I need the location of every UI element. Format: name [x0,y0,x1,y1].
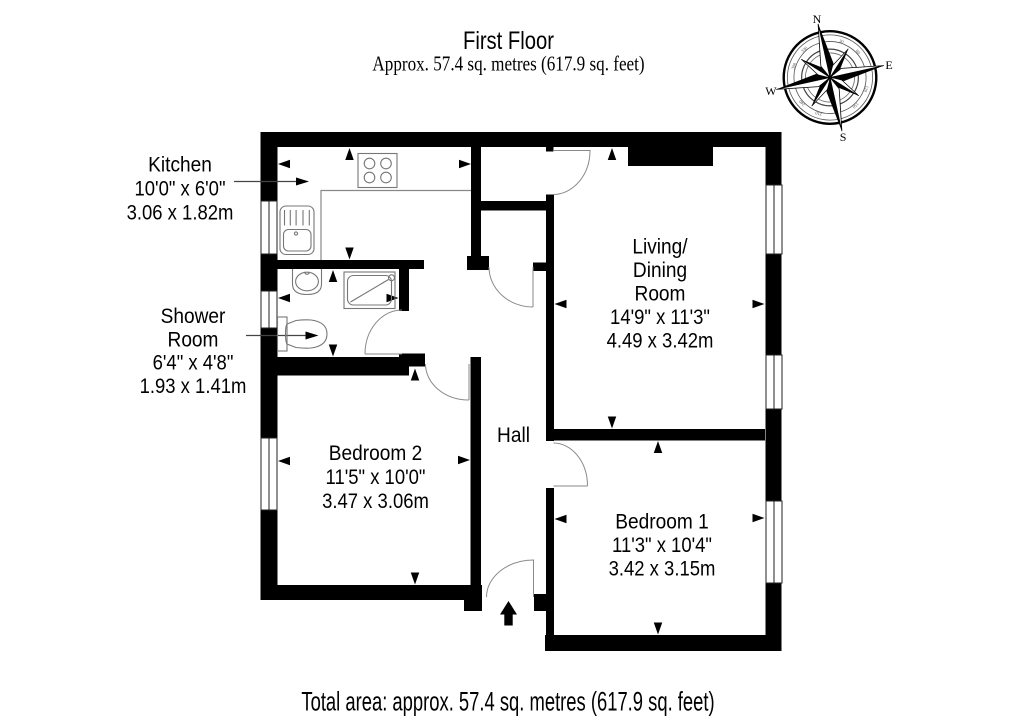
svg-text:10'0" x 6'0": 10'0" x 6'0" [134,177,225,200]
svg-text:Bedroom 1: Bedroom 1 [615,511,708,534]
svg-text:N: N [813,12,822,26]
svg-text:3.06 x 1.82m: 3.06 x 1.82m [127,201,234,224]
svg-text:Dining: Dining [633,259,687,282]
svg-text:Room: Room [635,283,686,306]
svg-text:Hall: Hall [497,424,530,447]
svg-text:Kitchen: Kitchen [148,154,212,177]
svg-text:Approx. 57.4 sq. metres (617.9: Approx. 57.4 sq. metres (617.9 sq. feet) [372,53,644,76]
svg-text:1.93 x 1.41m: 1.93 x 1.41m [140,375,247,398]
svg-text:S: S [840,130,847,144]
svg-text:W: W [765,84,777,98]
svg-text:3.42 x 3.15m: 3.42 x 3.15m [609,557,716,580]
svg-text:3.47 x 3.06m: 3.47 x 3.06m [322,490,429,513]
svg-text:Total area: approx. 57.4 sq. m: Total area: approx. 57.4 sq. metres (617… [301,686,714,716]
svg-text:Living/: Living/ [632,236,688,259]
svg-text:4.49 x 3.42m: 4.49 x 3.42m [607,329,714,352]
svg-text:11'3" x 10'4": 11'3" x 10'4" [612,534,712,557]
svg-text:First Floor: First Floor [463,26,554,55]
svg-text:11'5" x 10'0": 11'5" x 10'0" [326,466,426,489]
svg-text:Room: Room [168,329,219,352]
svg-text:E: E [885,58,892,72]
svg-text:Bedroom 2: Bedroom 2 [329,442,422,465]
svg-text:14'9" x 11'3": 14'9" x 11'3" [610,306,710,329]
svg-text:Shower: Shower [161,305,226,328]
svg-text:6'4" x 4'8": 6'4" x 4'8" [153,352,234,375]
